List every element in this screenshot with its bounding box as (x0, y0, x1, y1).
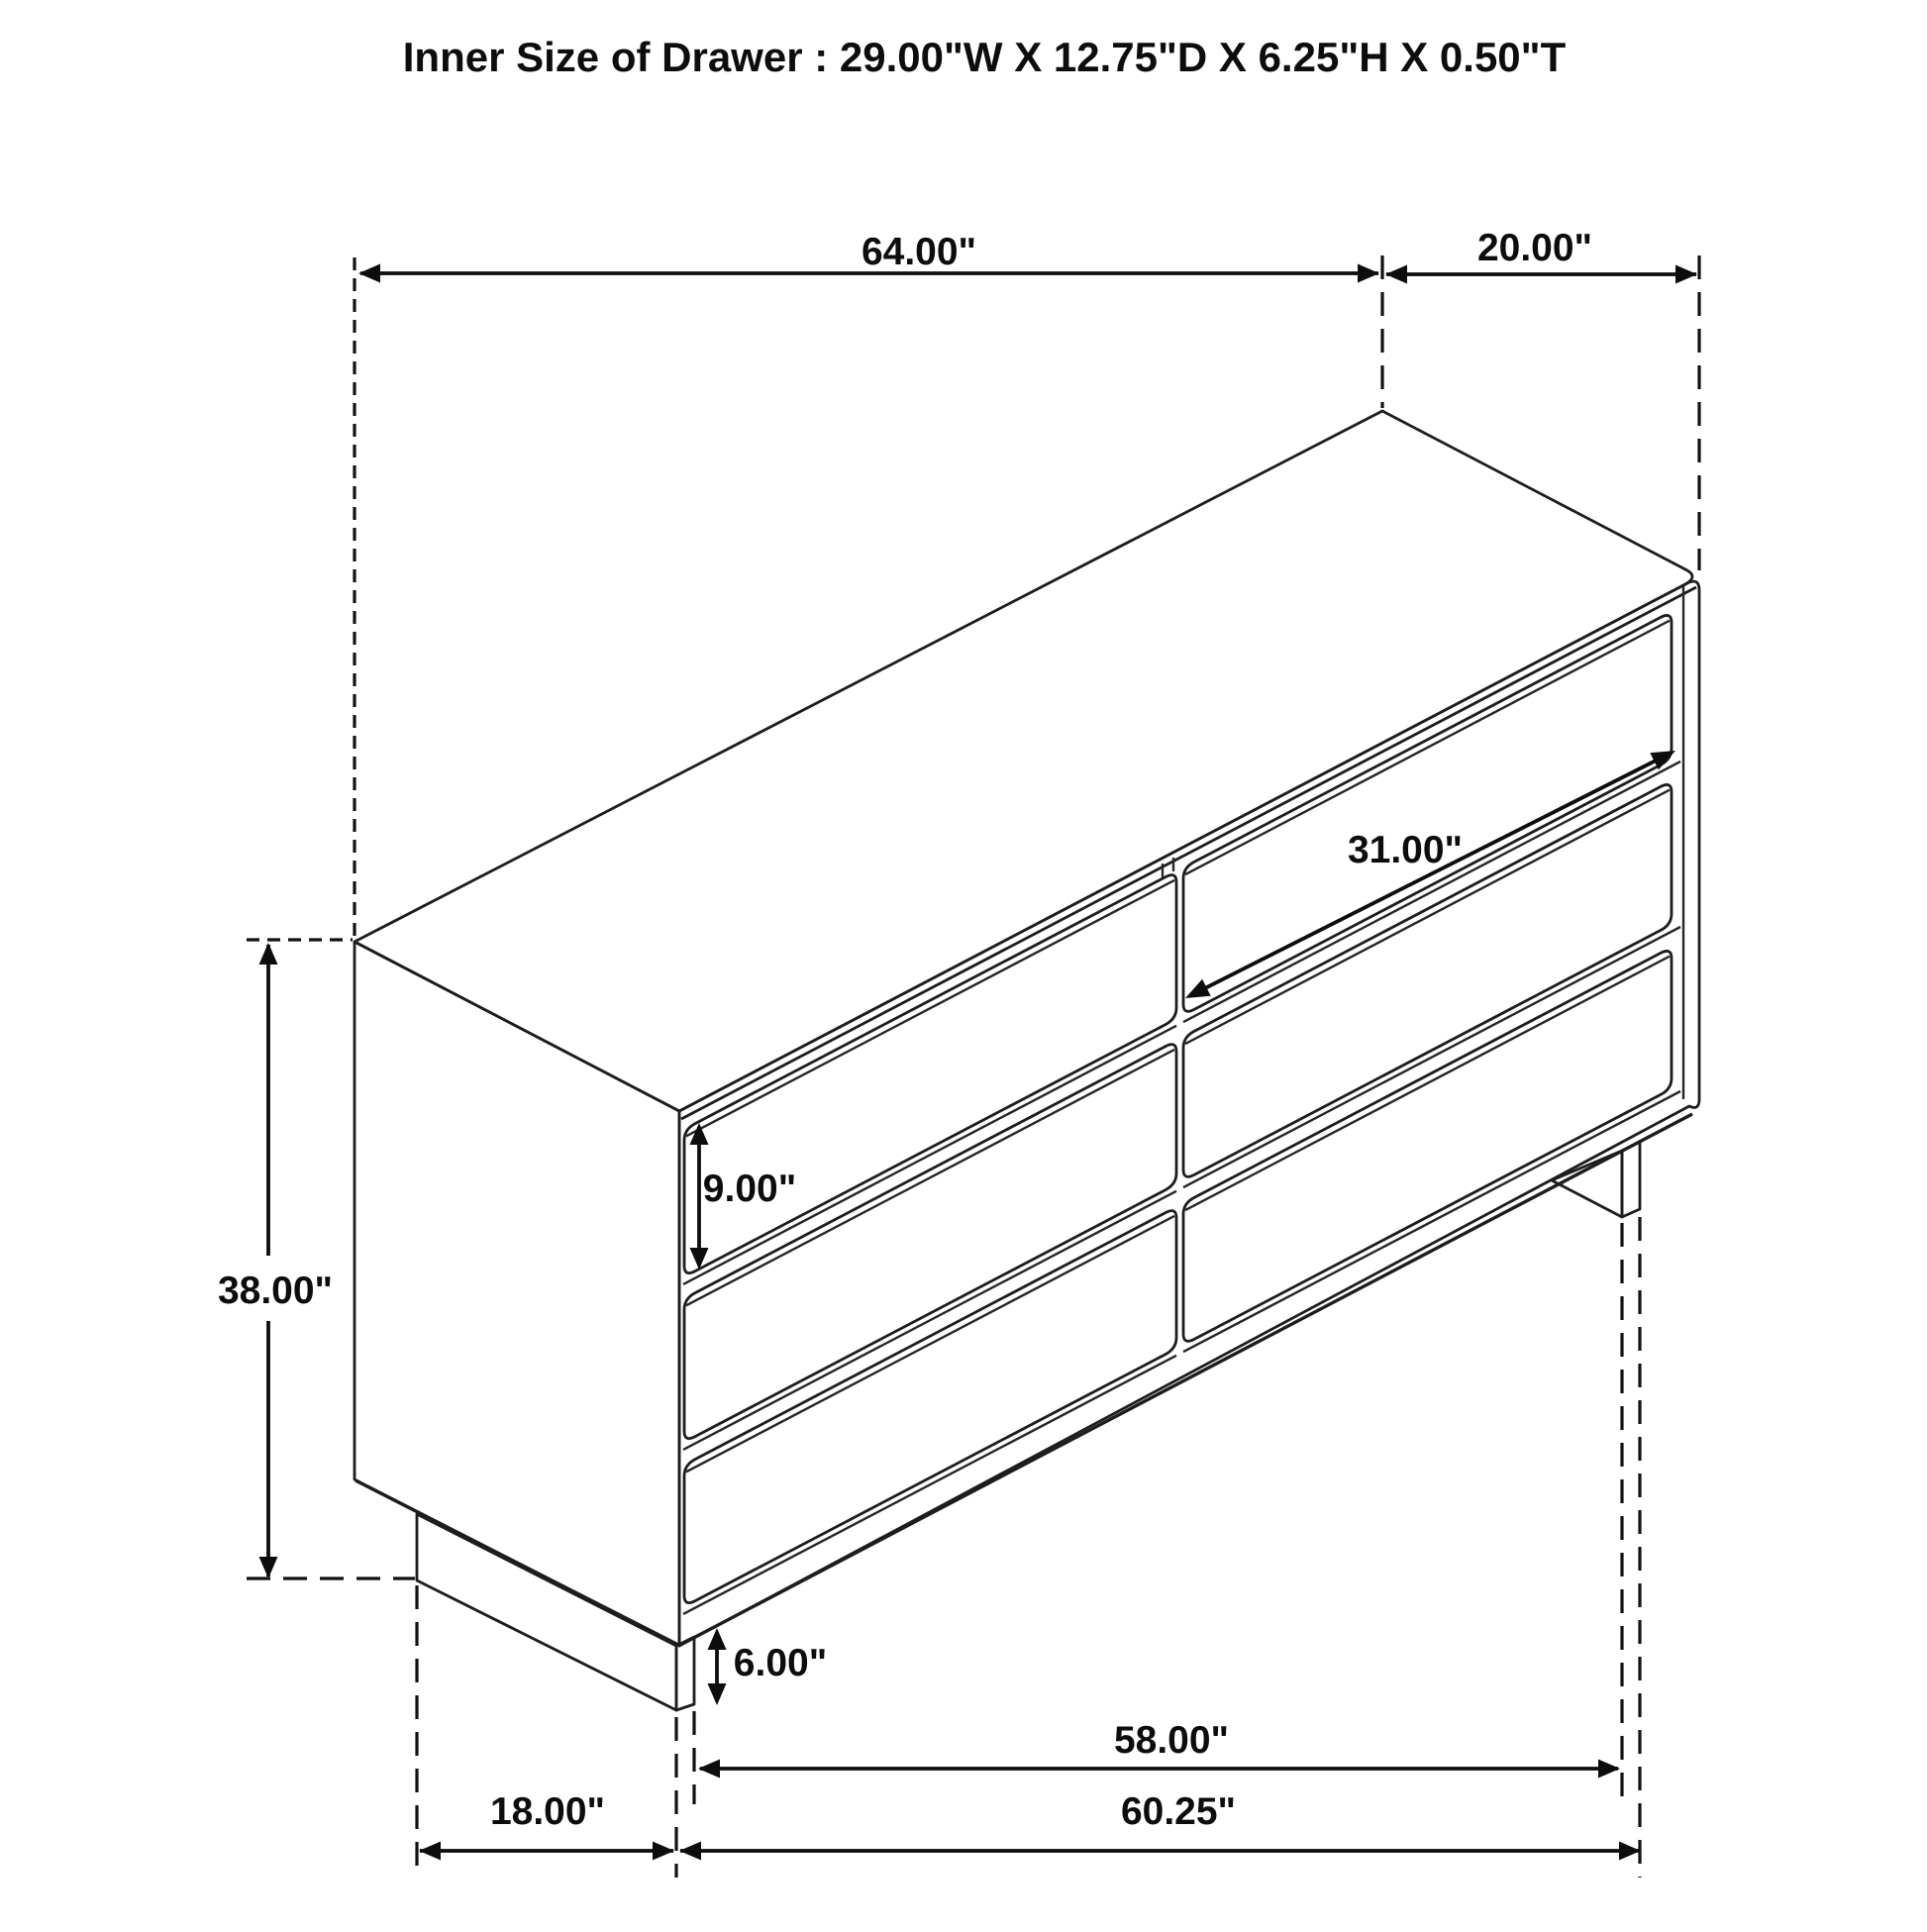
svg-text:64.00": 64.00" (862, 231, 976, 273)
svg-text:6.00": 6.00" (734, 1642, 827, 1684)
svg-text:Inner Size of Drawer : 29.00"W: Inner Size of Drawer : 29.00"W X 12.75"D… (403, 34, 1567, 80)
svg-text:18.00": 18.00" (490, 1790, 605, 1833)
svg-text:31.00": 31.00" (1348, 829, 1463, 871)
svg-text:20.00": 20.00" (1477, 227, 1592, 269)
svg-text:9.00": 9.00" (703, 1168, 796, 1210)
svg-text:58.00": 58.00" (1114, 1719, 1229, 1762)
svg-text:38.00": 38.00" (218, 1270, 333, 1312)
svg-text:60.25": 60.25" (1121, 1790, 1236, 1833)
